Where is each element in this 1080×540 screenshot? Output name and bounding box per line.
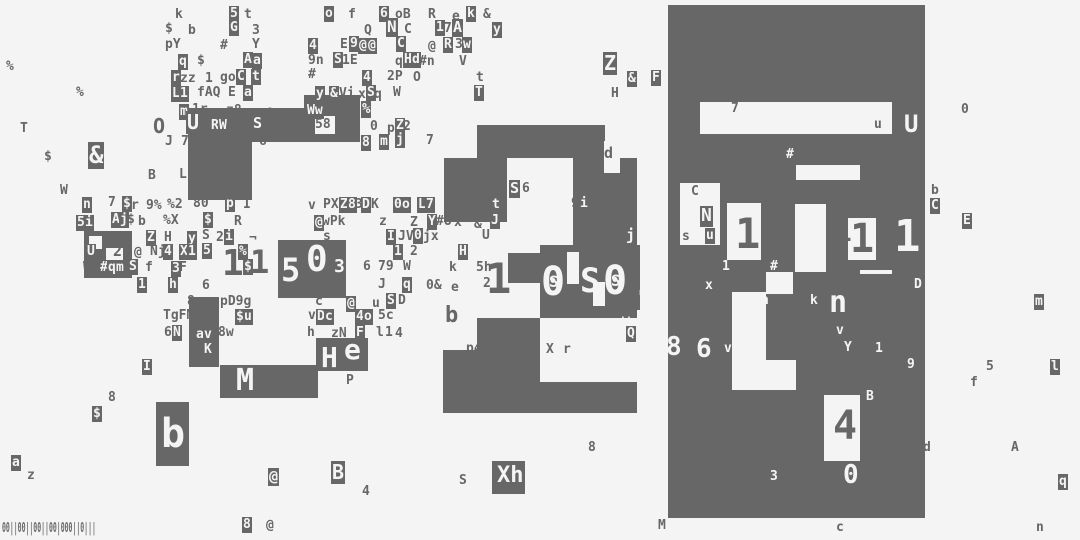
noise-canvas: 00||00||00||00|000||0||| k5tof6oBRek&$bG… bbox=[0, 0, 1080, 540]
glyph: Vi bbox=[339, 87, 355, 100]
glyph: b bbox=[445, 305, 458, 327]
glyph: 8 bbox=[361, 135, 371, 151]
glyph: v bbox=[836, 324, 844, 337]
glyph: 1 bbox=[894, 215, 921, 259]
glyph: q bbox=[374, 88, 382, 101]
glyph: PX bbox=[323, 198, 339, 211]
glyph: 8w bbox=[218, 326, 234, 339]
glyph: 6 bbox=[243, 120, 251, 133]
glyph: 6 bbox=[363, 260, 371, 273]
glyph: 0& bbox=[426, 279, 442, 292]
glyph: #n bbox=[419, 55, 435, 68]
glyph: @ bbox=[266, 519, 274, 532]
glyph: 7 bbox=[425, 197, 435, 213]
glyph: A bbox=[1011, 441, 1019, 454]
glyph: n bbox=[829, 288, 847, 318]
glyph: 7 bbox=[444, 22, 452, 35]
glyph: O bbox=[413, 71, 421, 84]
glyph: X bbox=[546, 343, 554, 356]
glyph: S bbox=[611, 273, 621, 289]
glyph: H bbox=[611, 87, 619, 100]
noise-hole bbox=[766, 272, 793, 294]
glyph: 4 bbox=[362, 485, 370, 498]
glyph: U bbox=[86, 244, 96, 260]
glyph: 1 bbox=[875, 342, 883, 355]
glyph: I bbox=[142, 359, 152, 375]
noise-hole bbox=[860, 270, 892, 274]
glyph: t bbox=[491, 197, 501, 213]
glyph: U bbox=[482, 229, 490, 242]
glyph: k bbox=[466, 6, 476, 22]
glyph: P bbox=[346, 374, 354, 387]
glyph: z8 bbox=[226, 104, 242, 117]
glyph: wPk bbox=[322, 215, 345, 228]
glyph: Z bbox=[603, 52, 617, 75]
glyph: JV bbox=[398, 230, 414, 243]
glyph: E bbox=[962, 213, 972, 229]
glyph: b bbox=[931, 184, 939, 197]
glyph: G bbox=[229, 20, 239, 36]
glyph: C bbox=[396, 36, 406, 52]
glyph: # bbox=[770, 260, 778, 273]
glyph: 3 bbox=[334, 258, 345, 276]
glyph: $ bbox=[44, 150, 52, 163]
glyph: r bbox=[563, 343, 571, 356]
glyph: I bbox=[443, 199, 451, 212]
glyph: W bbox=[403, 260, 411, 273]
glyph: 6 bbox=[202, 279, 210, 292]
glyph: 6 bbox=[164, 326, 172, 339]
glyph: 3 bbox=[252, 24, 260, 37]
glyph: l bbox=[376, 326, 384, 339]
noise-block bbox=[443, 382, 637, 413]
glyph: e bbox=[266, 105, 274, 118]
glyph: x bbox=[454, 216, 462, 229]
glyph: v bbox=[724, 342, 732, 355]
glyph: 2 bbox=[410, 245, 418, 258]
glyph: 9% bbox=[146, 199, 162, 212]
glyph: B bbox=[866, 390, 874, 403]
glyph: z bbox=[458, 200, 466, 213]
glyph: 4 bbox=[308, 38, 318, 54]
glyph: o bbox=[401, 197, 411, 213]
glyph: go bbox=[220, 71, 236, 84]
glyph: 5 bbox=[281, 254, 300, 286]
glyph: a bbox=[252, 53, 262, 69]
glyph: # bbox=[786, 148, 794, 161]
glyph: S bbox=[549, 274, 559, 290]
glyph: S bbox=[252, 115, 263, 133]
glyph: 0 bbox=[370, 120, 378, 133]
glyph: 4 bbox=[833, 406, 857, 446]
glyph: h bbox=[761, 294, 769, 307]
glyph: J bbox=[378, 278, 386, 291]
glyph: x bbox=[705, 279, 713, 292]
glyph: S bbox=[202, 229, 210, 242]
glyph: M bbox=[236, 366, 254, 396]
glyph: 5 bbox=[986, 360, 994, 373]
glyph: $ bbox=[165, 22, 173, 35]
glyph: F bbox=[651, 70, 661, 86]
glyph: Xh bbox=[497, 465, 524, 487]
glyph: r bbox=[131, 199, 139, 212]
glyph: 1 bbox=[137, 277, 147, 293]
glyph: t bbox=[219, 144, 232, 166]
glyph: 4 bbox=[163, 244, 173, 260]
glyph: U bbox=[186, 111, 200, 134]
glyph: a bbox=[243, 85, 253, 101]
glyph: W bbox=[60, 184, 68, 197]
glyph: 2P bbox=[387, 70, 403, 83]
glyph: S bbox=[648, 266, 667, 298]
glyph: v bbox=[308, 199, 316, 212]
glyph: W bbox=[393, 86, 401, 99]
glyph: jx bbox=[423, 230, 439, 243]
glyph: h bbox=[168, 277, 178, 293]
glyph: C bbox=[404, 23, 412, 36]
glyph: % bbox=[76, 86, 84, 99]
glyph: O bbox=[153, 116, 165, 136]
noise-hole bbox=[732, 360, 796, 390]
glyph: t bbox=[251, 69, 261, 85]
glyph: e bbox=[451, 281, 459, 294]
glyph: % bbox=[361, 101, 371, 118]
glyph: 6 bbox=[522, 182, 530, 195]
glyph: U bbox=[904, 112, 918, 136]
glyph: B bbox=[148, 169, 156, 182]
glyph: n bbox=[82, 197, 92, 213]
glyph: y bbox=[492, 22, 502, 38]
glyph: F bbox=[179, 261, 187, 274]
glyph: 0 bbox=[843, 462, 859, 488]
glyph: 8 bbox=[187, 295, 195, 308]
glyph: zz bbox=[180, 72, 196, 85]
glyph: Y bbox=[843, 340, 853, 356]
glyph: 79 bbox=[378, 260, 394, 273]
glyph: @ bbox=[134, 246, 142, 259]
glyph: @ bbox=[428, 40, 436, 53]
glyph: 8 bbox=[338, 105, 346, 118]
glyph: 1 bbox=[722, 260, 730, 273]
glyph: 7x bbox=[181, 135, 197, 148]
glyph: C bbox=[236, 69, 246, 85]
glyph: q bbox=[395, 55, 403, 68]
glyph: 1 bbox=[385, 326, 393, 339]
glyph: 1E bbox=[342, 54, 358, 67]
glyph: 1 bbox=[850, 219, 874, 259]
glyph: q bbox=[178, 54, 188, 70]
glyph: @ bbox=[268, 468, 279, 486]
glyph: b bbox=[188, 24, 196, 37]
glyph: 8 bbox=[666, 334, 682, 360]
glyph: y bbox=[315, 86, 325, 102]
glyph: 8 bbox=[242, 517, 252, 533]
glyph: I bbox=[386, 229, 396, 245]
glyph: fAQ bbox=[197, 86, 220, 99]
glyph: D bbox=[361, 197, 371, 213]
glyph: 1 bbox=[187, 244, 197, 260]
glyph: c bbox=[315, 295, 323, 308]
glyph: S bbox=[459, 474, 467, 487]
glyph: n bbox=[1036, 521, 1044, 534]
glyph: j bbox=[626, 228, 635, 243]
glyph: 6 bbox=[259, 135, 267, 148]
glyph: %X bbox=[163, 214, 179, 227]
glyph: 9 bbox=[571, 197, 579, 210]
glyph: S bbox=[128, 259, 138, 275]
glyph: D bbox=[914, 278, 922, 291]
glyph: z bbox=[379, 215, 387, 228]
glyph: C bbox=[691, 185, 699, 198]
glyph: o bbox=[363, 309, 373, 325]
glyph: s bbox=[682, 230, 690, 243]
glyph: T bbox=[20, 122, 28, 135]
glyph: 8 bbox=[108, 391, 116, 404]
glyph: k bbox=[449, 261, 457, 274]
glyph: S bbox=[386, 293, 396, 309]
glyph: u bbox=[243, 309, 253, 325]
glyph: 1 bbox=[205, 72, 213, 85]
glyph: K bbox=[371, 198, 379, 211]
glyph: T bbox=[474, 85, 484, 101]
glyph: #U bbox=[436, 215, 452, 228]
glyph: c bbox=[836, 521, 844, 534]
glyph: & bbox=[474, 218, 482, 231]
glyph: S bbox=[806, 226, 817, 244]
glyph: I bbox=[243, 198, 251, 211]
glyph: & bbox=[483, 8, 491, 21]
glyph: W3 bbox=[83, 261, 99, 274]
glyph: h bbox=[307, 326, 315, 339]
glyph: 1 bbox=[179, 86, 189, 102]
glyph: 7 bbox=[731, 102, 739, 115]
glyph: C bbox=[930, 198, 940, 214]
glyph: 1 bbox=[735, 213, 760, 255]
glyph: 0 bbox=[413, 228, 423, 244]
glyph: TgFM bbox=[163, 309, 194, 322]
noise-block bbox=[508, 253, 540, 283]
glyph: H bbox=[164, 231, 172, 244]
glyph: 5c bbox=[378, 309, 394, 322]
glyph: q bbox=[402, 277, 412, 293]
glyph: V bbox=[459, 55, 467, 68]
glyph: 9n bbox=[308, 54, 324, 67]
glyph: # bbox=[483, 199, 491, 212]
noise-hole bbox=[700, 102, 892, 134]
glyph: 0 bbox=[306, 242, 328, 278]
glyph: 4 bbox=[395, 327, 403, 340]
glyph: # bbox=[220, 39, 228, 52]
glyph: f bbox=[145, 261, 153, 274]
glyph: $ bbox=[92, 406, 102, 422]
glyph: m bbox=[115, 260, 125, 276]
glyph: H bbox=[321, 344, 338, 372]
glyph: 4 bbox=[362, 70, 372, 86]
glyph: a bbox=[11, 455, 21, 471]
glyph: 2 bbox=[113, 244, 122, 259]
glyph: 8 bbox=[588, 441, 596, 454]
glyph: f bbox=[970, 376, 978, 389]
glyph: & bbox=[627, 71, 637, 87]
glyph: Q bbox=[626, 326, 636, 342]
glyph: 80 bbox=[193, 197, 209, 210]
barcode-text: 00||00||00||00|000||0||| bbox=[2, 522, 96, 535]
glyph: u bbox=[874, 118, 882, 131]
glyph: N bbox=[386, 18, 398, 37]
glyph: %2 bbox=[167, 198, 183, 211]
glyph: b bbox=[138, 215, 146, 228]
glyph: 7 bbox=[426, 134, 434, 147]
glyph: 1 bbox=[222, 246, 244, 282]
glyph: j bbox=[395, 132, 405, 148]
glyph: B bbox=[331, 461, 345, 484]
glyph: f bbox=[348, 8, 356, 21]
glyph: m bbox=[1034, 294, 1044, 310]
glyph: w bbox=[462, 37, 472, 53]
glyph: E bbox=[340, 38, 348, 51]
glyph: R bbox=[443, 37, 453, 53]
glyph: W bbox=[218, 118, 228, 134]
glyph: K bbox=[203, 342, 213, 358]
glyph: v bbox=[203, 327, 213, 343]
glyph: Y bbox=[252, 38, 260, 51]
noise-block bbox=[220, 365, 318, 398]
glyph: p4 bbox=[466, 342, 482, 355]
glyph: J bbox=[165, 135, 173, 148]
glyph: c bbox=[324, 309, 334, 325]
glyph: m bbox=[379, 134, 389, 150]
glyph: A bbox=[452, 19, 463, 37]
glyph: D bbox=[398, 294, 406, 307]
glyph: d bbox=[604, 146, 613, 161]
glyph: R bbox=[234, 215, 242, 228]
glyph: 94 bbox=[314, 278, 330, 291]
glyph: k bbox=[810, 294, 818, 307]
glyph: & bbox=[329, 86, 339, 102]
glyph: $ bbox=[197, 54, 205, 67]
glyph: % bbox=[6, 60, 14, 73]
glyph: 3 bbox=[770, 470, 778, 483]
glyph: 9 bbox=[906, 357, 916, 373]
glyph: t bbox=[476, 71, 484, 84]
glyph: t bbox=[244, 8, 252, 21]
glyph: S bbox=[580, 264, 600, 298]
noise-block bbox=[477, 125, 605, 158]
glyph: 1 bbox=[486, 258, 511, 300]
glyph: & bbox=[88, 142, 104, 169]
glyph: 6 bbox=[696, 336, 712, 362]
glyph: $ bbox=[127, 213, 135, 226]
glyph: 1 bbox=[250, 246, 269, 278]
glyph: i bbox=[579, 196, 589, 212]
glyph: $ bbox=[203, 212, 213, 228]
glyph: H bbox=[458, 244, 468, 260]
glyph: M bbox=[658, 519, 666, 532]
glyph: e bbox=[344, 336, 361, 364]
glyph: i bbox=[84, 215, 94, 231]
glyph: Q bbox=[364, 24, 372, 37]
noise-hole bbox=[796, 165, 860, 180]
glyph: d bbox=[923, 441, 931, 454]
glyph: z bbox=[27, 469, 35, 482]
glyph: N bbox=[700, 206, 713, 227]
glyph: v bbox=[308, 309, 316, 322]
glyph: S bbox=[509, 180, 520, 198]
glyph: o bbox=[324, 6, 334, 22]
glyph: l bbox=[1050, 359, 1060, 375]
glyph: # bbox=[308, 68, 316, 81]
glyph: 5 bbox=[202, 243, 212, 259]
glyph: u bbox=[705, 228, 715, 244]
glyph: x bbox=[358, 88, 366, 101]
glyph: 0 bbox=[961, 103, 969, 116]
glyph: J bbox=[490, 213, 500, 229]
glyph: p bbox=[225, 196, 235, 212]
glyph: 58 bbox=[315, 118, 331, 131]
glyph: E bbox=[228, 86, 236, 99]
noise-hole bbox=[567, 252, 579, 284]
glyph: q bbox=[1058, 474, 1068, 490]
glyph: N bbox=[172, 325, 182, 341]
glyph: 1 bbox=[393, 244, 403, 260]
glyph: pD9g bbox=[220, 295, 251, 308]
glyph: 1 bbox=[764, 217, 788, 257]
glyph: k bbox=[175, 8, 183, 21]
glyph: pY bbox=[165, 38, 181, 51]
glyph: L bbox=[179, 168, 187, 181]
glyph: 7 bbox=[108, 196, 116, 209]
glyph: b bbox=[161, 414, 185, 454]
glyph: @ bbox=[367, 38, 377, 54]
